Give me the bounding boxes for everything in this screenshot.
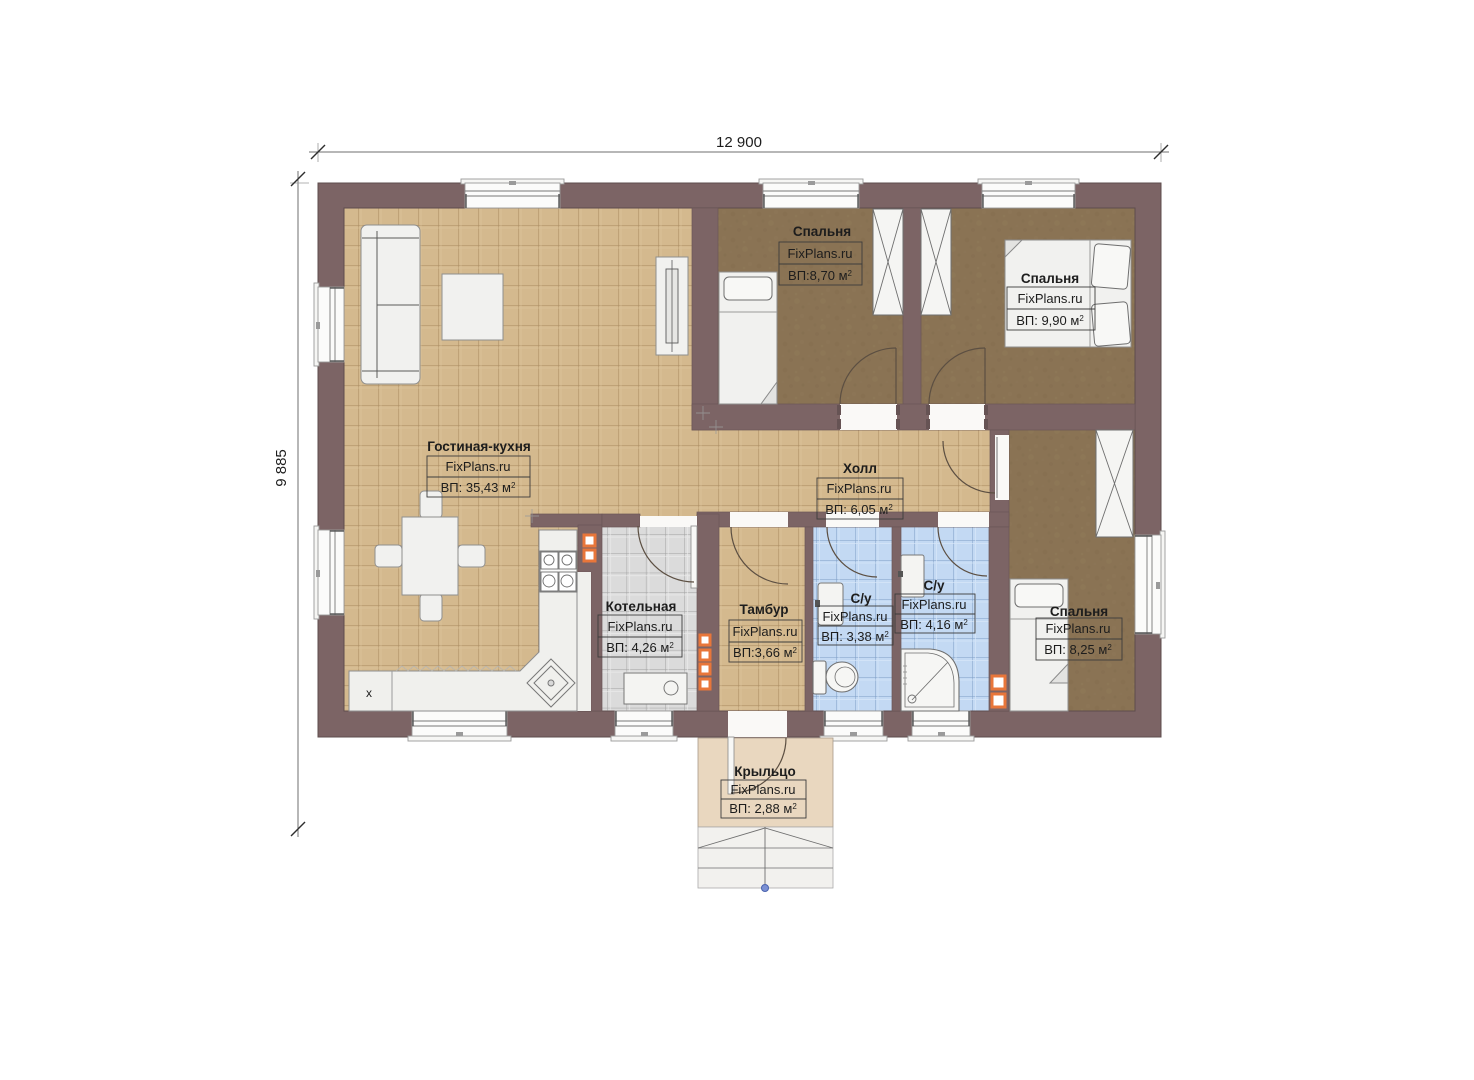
svg-text:FixPlans.ru: FixPlans.ru	[826, 481, 891, 496]
svg-text:Спальня: Спальня	[1021, 271, 1079, 286]
svg-text:С/у: С/у	[923, 578, 945, 593]
svg-text:С/у: С/у	[850, 591, 872, 606]
svg-text:Спальня: Спальня	[1050, 604, 1108, 619]
svg-text:ВП:8,70 м2: ВП:8,70 м2	[788, 268, 852, 283]
svg-text:FixPlans.ru: FixPlans.ru	[1045, 621, 1110, 636]
svg-text:Гостиная-кухня: Гостиная-кухня	[427, 439, 530, 454]
svg-text:FixPlans.ru: FixPlans.ru	[1017, 291, 1082, 306]
svg-text:ВП: 4,26 м2: ВП: 4,26 м2	[606, 640, 674, 655]
svg-text:9 885: 9 885	[273, 449, 290, 487]
svg-text:FixPlans.ru: FixPlans.ru	[607, 619, 672, 634]
svg-text:ВП: 2,88 м2: ВП: 2,88 м2	[729, 801, 797, 816]
svg-text:Спальня: Спальня	[793, 224, 851, 239]
svg-text:ВП: 4,16 м2: ВП: 4,16 м2	[900, 617, 968, 632]
svg-text:Крыльцо: Крыльцо	[734, 764, 795, 779]
svg-text:Холл: Холл	[843, 461, 877, 476]
svg-text:FixPlans.ru: FixPlans.ru	[732, 624, 797, 639]
svg-text:ВП: 6,05 м2: ВП: 6,05 м2	[825, 502, 893, 517]
svg-text:ВП: 3,38 м2: ВП: 3,38 м2	[821, 629, 889, 644]
svg-text:FixPlans.ru: FixPlans.ru	[822, 609, 887, 624]
svg-text:ВП: 35,43 м2: ВП: 35,43 м2	[441, 480, 516, 495]
svg-text:FixPlans.ru: FixPlans.ru	[445, 459, 510, 474]
svg-text:ВП: 9,90 м2: ВП: 9,90 м2	[1016, 313, 1084, 328]
svg-text:ВП: 8,25 м2: ВП: 8,25 м2	[1044, 642, 1112, 657]
svg-text:ВП:3,66 м2: ВП:3,66 м2	[733, 645, 797, 660]
svg-text:FixPlans.ru: FixPlans.ru	[787, 246, 852, 261]
svg-text:FixPlans.ru: FixPlans.ru	[730, 782, 795, 797]
svg-text:Котельная: Котельная	[606, 599, 677, 614]
svg-text:FixPlans.ru: FixPlans.ru	[901, 597, 966, 612]
svg-text:x: x	[366, 686, 372, 700]
svg-text:Тамбур: Тамбур	[740, 602, 789, 617]
svg-text:12 900: 12 900	[716, 134, 762, 151]
